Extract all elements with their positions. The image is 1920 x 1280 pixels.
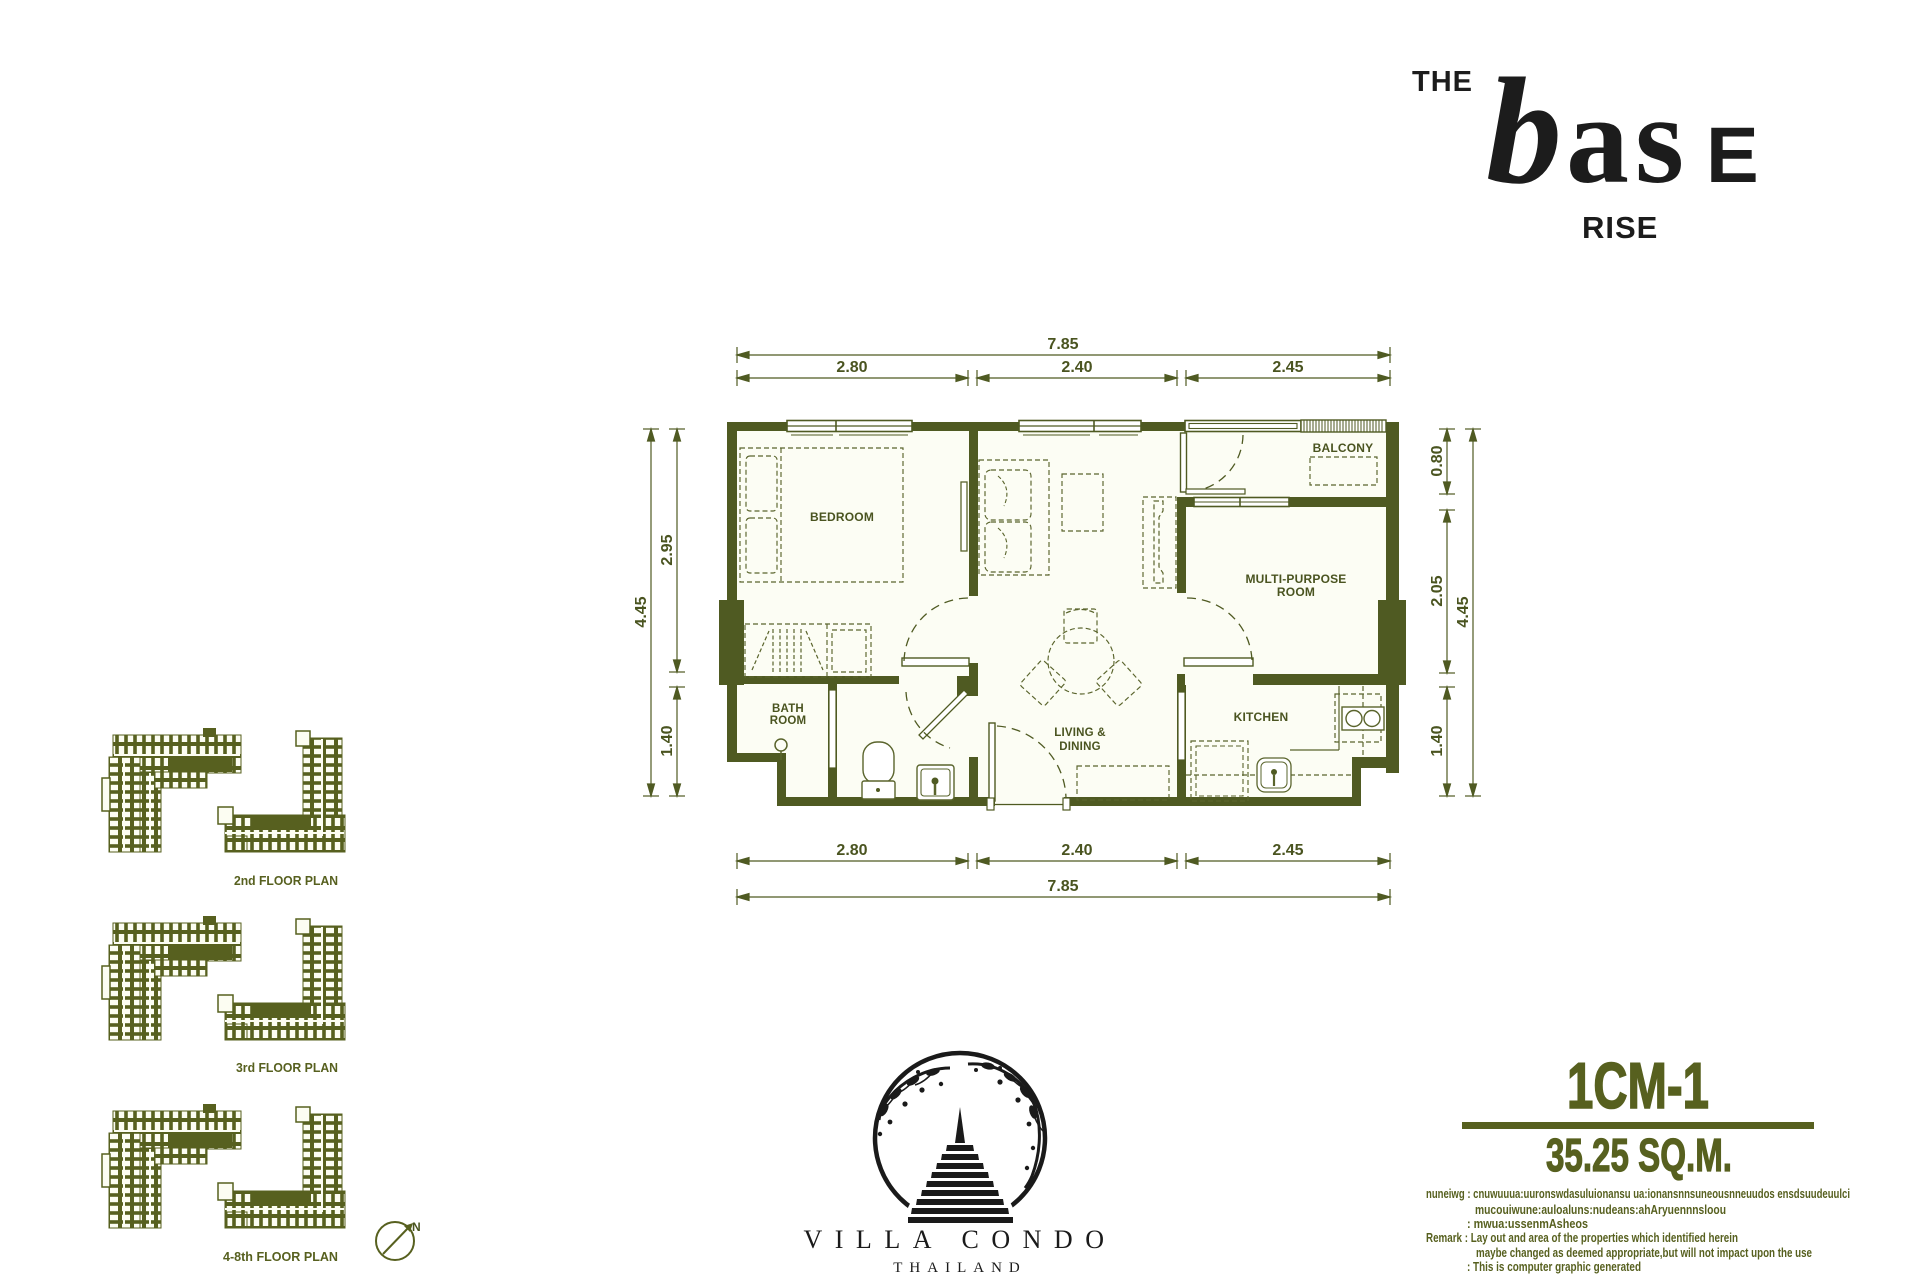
svg-text:ROOM: ROOM [770, 715, 807, 727]
svg-text:N: N [412, 1220, 421, 1234]
svg-text:mucouiwune:auloaluns:nudeans:a: mucouiwune:auloaluns:nudeans:ahAryuennns… [1475, 1203, 1726, 1217]
svg-text:2.80: 2.80 [836, 842, 867, 859]
svg-text:: This is computer graphic gen: : This is computer graphic generated [1467, 1260, 1641, 1274]
svg-text:ROOM: ROOM [1277, 585, 1315, 599]
svg-text:0.80: 0.80 [1429, 445, 1446, 476]
svg-text:E: E [1706, 110, 1759, 199]
svg-text:2.05: 2.05 [1429, 575, 1446, 606]
svg-text:2nd FLOOR PLAN: 2nd FLOOR PLAN [234, 873, 338, 888]
svg-text:2.45: 2.45 [1272, 842, 1303, 859]
svg-text:Remark : Lay out and area of: Remark : Lay out and area of the propert… [1426, 1231, 1738, 1245]
svg-text:nuneiwg : cnuwuuua:uuronswdasu: nuneiwg : cnuwuuua:uuronswdasuluionansu … [1426, 1187, 1850, 1201]
svg-text:BEDROOM: BEDROOM [810, 510, 874, 524]
svg-text:1CM-1: 1CM-1 [1567, 1049, 1709, 1122]
svg-text:1.40: 1.40 [659, 725, 676, 756]
svg-text:as: as [1566, 71, 1690, 210]
svg-text:THAILAND: THAILAND [893, 1260, 1026, 1276]
svg-text:VILLA CONDO: VILLA CONDO [804, 1225, 1117, 1254]
svg-text:1.40: 1.40 [1429, 725, 1446, 756]
svg-text:2.80: 2.80 [836, 359, 867, 376]
svg-text:2.45: 2.45 [1272, 359, 1303, 376]
svg-text:7.85: 7.85 [1047, 336, 1078, 353]
svg-text:THE: THE [1412, 66, 1473, 98]
svg-text:4.45: 4.45 [633, 596, 650, 627]
svg-text:4.45: 4.45 [1455, 596, 1472, 627]
svg-text:2.40: 2.40 [1061, 359, 1092, 376]
svg-text:LIVING &: LIVING & [1054, 727, 1105, 739]
svg-text:2.40: 2.40 [1061, 842, 1092, 859]
svg-text:: mwua:ussenmAsheos: : mwua:ussenmAsheos [1467, 1217, 1588, 1231]
svg-text:BATH: BATH [772, 703, 804, 715]
svg-text:7.85: 7.85 [1047, 878, 1078, 895]
svg-text:3rd FLOOR PLAN: 3rd FLOOR PLAN [236, 1060, 338, 1075]
svg-text:BALCONY: BALCONY [1313, 441, 1374, 455]
svg-text:2.95: 2.95 [659, 534, 676, 565]
svg-text:DINING: DINING [1059, 741, 1100, 753]
svg-text:4-8th FLOOR PLAN: 4-8th FLOOR PLAN [223, 1249, 338, 1264]
svg-text:RISE: RISE [1582, 210, 1658, 245]
svg-text:35.25 SQ.M.: 35.25 SQ.M. [1546, 1129, 1732, 1181]
svg-text:maybe changed as deemed approp: maybe changed as deemed appropriate,but … [1476, 1246, 1812, 1260]
svg-text:MULTI-PURPOSE: MULTI-PURPOSE [1245, 572, 1346, 586]
svg-text:b: b [1486, 47, 1562, 215]
svg-text:KITCHEN: KITCHEN [1234, 710, 1289, 724]
